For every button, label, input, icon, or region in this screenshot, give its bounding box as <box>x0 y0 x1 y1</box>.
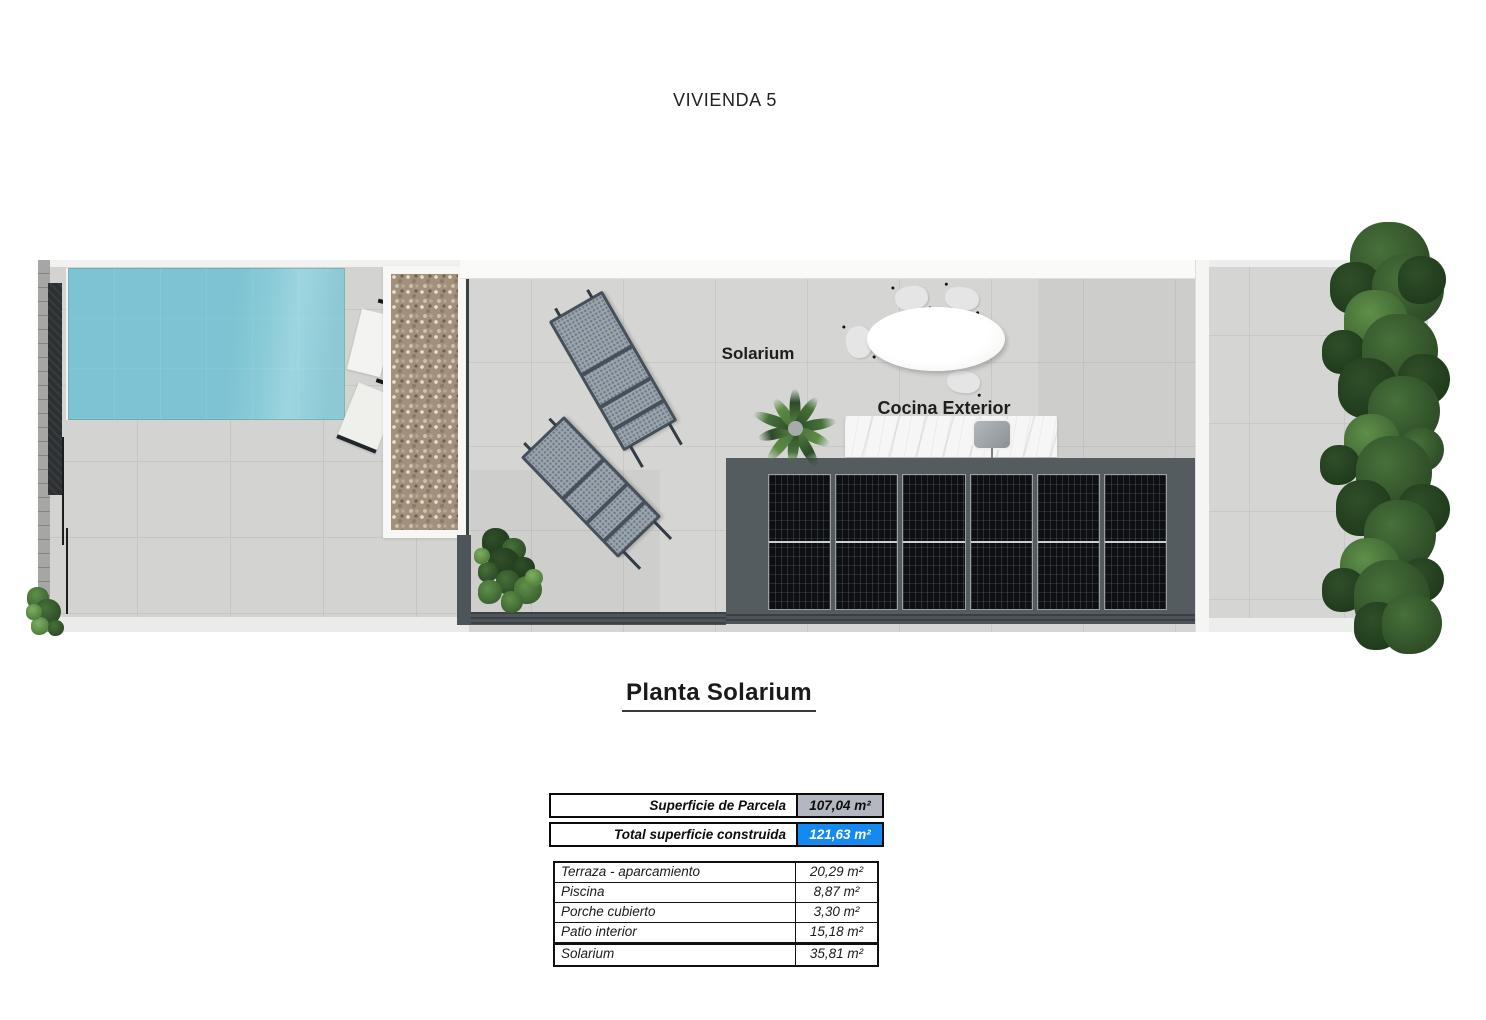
areas-table: Terraza - aparcamiento 20,29 m² Piscina … <box>553 861 879 944</box>
dark-wall-segment <box>48 283 62 495</box>
table-row: Solarium 35,81 m² <box>555 945 877 965</box>
plan-heading: Planta Solarium <box>622 679 816 712</box>
wall-line <box>62 437 64 545</box>
dark-wall-pier <box>457 535 471 625</box>
summary-label: Superficie de Parcela <box>551 795 796 816</box>
gravel-bed <box>391 274 458 530</box>
area-value: 8,87 m² <box>795 883 877 902</box>
solar-panel-array <box>768 474 1167 610</box>
floor-plan: Solarium Cocina Exterior <box>38 260 1428 632</box>
area-label: Patio interior <box>555 923 795 942</box>
solar-panel <box>835 474 898 610</box>
foliage-blob <box>1382 594 1442 654</box>
table-row: Porche cubierto 3,30 m² <box>555 903 877 923</box>
wall-line <box>66 528 68 614</box>
summary-value: 121,63 m² <box>796 824 882 845</box>
area-value: 35,81 m² <box>795 945 877 965</box>
table-row: Terraza - aparcamiento 20,29 m² <box>555 863 877 883</box>
tile-shading <box>1038 278 1195 468</box>
solar-panel <box>768 474 831 610</box>
table-row: Piscina 8,87 m² <box>555 883 877 903</box>
solar-panel <box>970 474 1033 610</box>
foliage-blob <box>48 620 64 636</box>
page: VIVIENDA 5 Solarium <box>0 0 1486 1020</box>
dark-wall-band <box>458 612 726 625</box>
solar-panel <box>1104 474 1167 610</box>
area-label: Terraza - aparcamiento <box>555 863 795 882</box>
area-label: Solarium <box>555 945 795 965</box>
planter-pot <box>788 421 803 436</box>
kitchen-sink <box>974 421 1010 448</box>
solar-panel <box>1037 474 1100 610</box>
summary-value: 107,04 m² <box>796 795 882 816</box>
area-value: 15,18 m² <box>795 923 877 942</box>
table-row: Patio interior 15,18 m² <box>555 923 877 942</box>
dining-table <box>867 307 1005 371</box>
solar-panel <box>902 474 965 610</box>
solarium-row-table: Solarium 35,81 m² <box>553 943 879 967</box>
foliage-blob <box>501 591 523 613</box>
solarium-area-label: Solarium <box>690 344 826 364</box>
slab-edge <box>726 614 1207 624</box>
summary-row-parcela: Superficie de Parcela 107,04 m² <box>549 793 884 818</box>
summary-label: Total superficie construida <box>551 824 796 845</box>
wall-edge <box>50 617 469 632</box>
area-value: 3,30 m² <box>795 903 877 922</box>
page-title: VIVIENDA 5 <box>0 90 1450 111</box>
parapet-wall <box>460 260 1207 279</box>
kitchen-counter <box>845 416 1057 457</box>
plan-heading-wrap: Planta Solarium <box>0 679 1438 712</box>
area-label: Porche cubierto <box>555 903 795 922</box>
summary-row-construida: Total superficie construida 121,63 m² <box>549 822 884 847</box>
area-label: Piscina <box>555 883 795 902</box>
swimming-pool <box>68 268 345 420</box>
area-value: 20,29 m² <box>795 863 877 882</box>
